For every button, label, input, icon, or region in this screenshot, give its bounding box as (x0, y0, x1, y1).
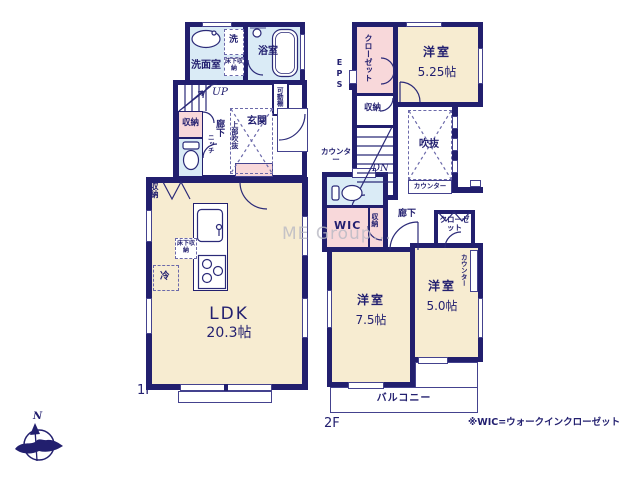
wic-footnote: ※WIC=ウォークインクローゼット (468, 418, 620, 429)
f2-bedroom-a-size: 5.25帖 (400, 66, 474, 79)
f2-bedroom-a-name: 洋室 (400, 46, 474, 59)
f2-window-bedroom-a-top (406, 22, 442, 27)
f2-bedroom-b-size: 7.5帖 (332, 314, 410, 327)
f2-stairs-down-label: DN (372, 163, 389, 174)
watermark: ME Group... (282, 224, 392, 244)
f1-entrance-label: 玄関 (247, 116, 267, 127)
f2-wall-void-bottom (452, 187, 483, 193)
f1-terrace (178, 391, 272, 403)
f2-window-corner (470, 180, 481, 187)
f1-ldk-underfloor-label: 床下収納 (176, 241, 196, 254)
f2-window-bedroom-c-bottom (418, 357, 448, 364)
f1-kitchen-island (193, 203, 228, 291)
f2-window-bedroom-c-right (478, 298, 483, 338)
compass-north-label: N (33, 411, 42, 422)
f1-window-washroom-top (202, 22, 232, 27)
f1-ldk-name-label: LDK (186, 305, 272, 324)
f1-bathroom-label: 浴室 (258, 46, 278, 57)
f2-void-balustrade-3 (452, 160, 458, 173)
f2-toilet-counter-label: カウンター (320, 148, 352, 165)
f1-window-ldk-left-2 (146, 298, 152, 334)
f2-storage-north-label: 収納 (364, 104, 381, 114)
f2-bedroom-c-size: 5.0帖 (412, 300, 472, 313)
f1-hallway-label: 廊下 (214, 119, 224, 145)
f2-window-bedroom-a-right (478, 48, 483, 84)
f2-void-balustrade-1 (452, 116, 458, 129)
f1-hall-storage-label: 収納 (182, 119, 199, 129)
f2-hallway-label: 廊下 (398, 209, 416, 219)
f2-eps-slit (349, 70, 357, 84)
f2-wall-storage-stairs (357, 125, 393, 128)
f1-washroom-label: 洗面室 (191, 60, 221, 71)
f1-fridge-label: 冷 (160, 272, 170, 283)
f2-window-bedroom-b-bottom (348, 382, 384, 389)
f1-window-ldk-bottom-mullion (224, 384, 228, 391)
f2-balcony-right (415, 362, 478, 388)
f2-void-label: 吹抜 (419, 139, 439, 150)
f1-floor-label: 1F (137, 384, 153, 399)
f1-niche-label: ニッチ (206, 134, 213, 158)
f1-underfloor-top-label: 床下収納 (224, 59, 244, 72)
f1-window-bath-right (300, 34, 305, 70)
f2-closet-south-label: クローゼット (438, 216, 471, 233)
f1-window-ldk-right-2 (302, 298, 308, 338)
f2-bedroom-c-name: 洋室 (412, 280, 472, 293)
f2-eps-mark (349, 84, 357, 90)
f1-washer-label: 洗 (229, 35, 238, 45)
f1-movable-shelf-label: 可動棚 (275, 87, 282, 113)
f2-void-counter-label: カウンター (409, 183, 451, 190)
f1-window-ldk-left-1 (146, 210, 152, 242)
f1-ldk-size-label: 20.3帖 (186, 326, 272, 342)
f2-toilet-floor (327, 177, 383, 208)
f1-ldk-storage-label: 収納 (149, 182, 158, 206)
f2-balcony-label: バルコニー (354, 393, 454, 404)
f2-wall-closet-storage (357, 93, 393, 96)
f1-stairs-up-label: UP (212, 87, 228, 99)
f2-void-balustrade-2 (452, 138, 458, 151)
f1-porch (277, 108, 308, 152)
f2-closet-north-label: クローゼット (363, 34, 372, 70)
f2-floor-label: 2F (324, 417, 340, 432)
floorplan-canvas: 洗面室 洗 床下収納 浴室 可動棚 UP 収納 廊下 ニッチ 玄関 上部吹抜 収… (0, 0, 640, 480)
f2-eps-label: EPS (334, 58, 343, 100)
f1-toilet-floor (178, 138, 203, 177)
compass-icon (12, 414, 66, 474)
f2-bedroom-b-name: 洋室 (332, 294, 410, 307)
f1-upper-void-label: 上部吹抜 (230, 121, 238, 165)
